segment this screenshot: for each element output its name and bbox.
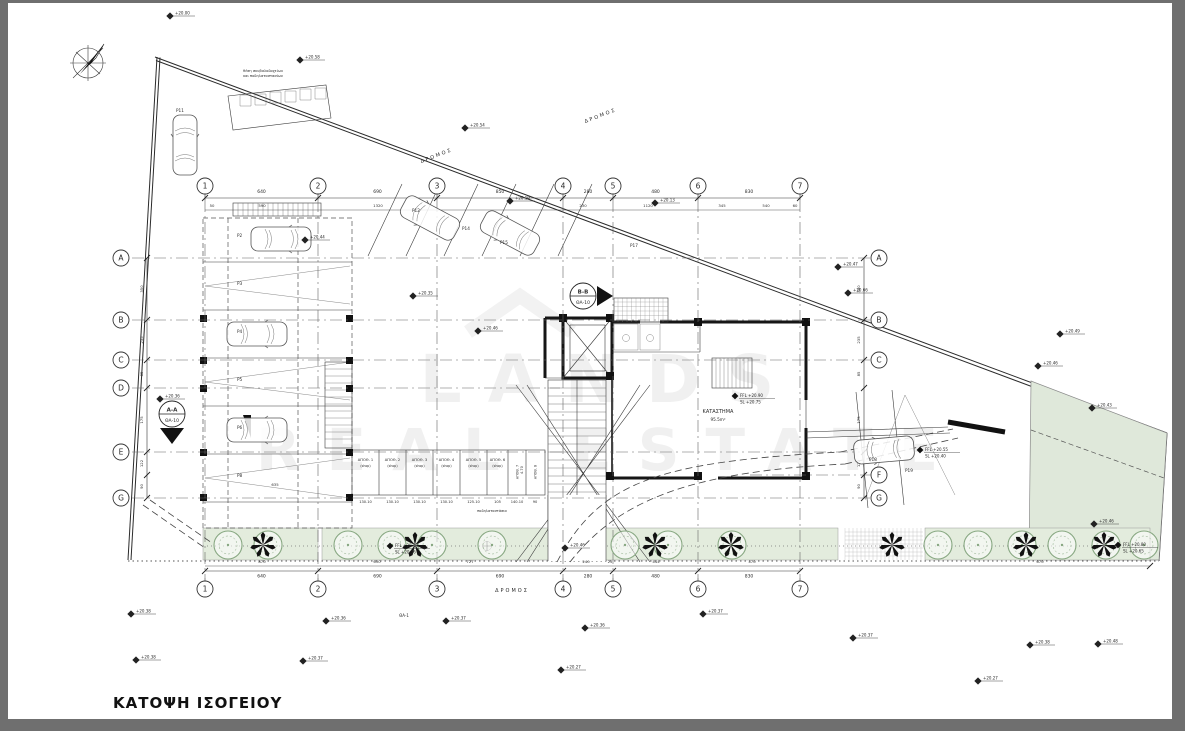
tree-icon (478, 531, 506, 559)
spot-level-value: +20.49 (1065, 329, 1080, 334)
parking-stall-label: P18 (869, 457, 877, 462)
dim-label: 850 (496, 189, 505, 195)
note-label: 4.70 (520, 466, 524, 474)
grid-bubble-label: G (118, 494, 124, 503)
parking-stall-label: P4 (237, 329, 243, 334)
dim-label: 25 (608, 559, 613, 564)
tree-icon (924, 531, 952, 559)
grid-bubble-label: E (119, 448, 124, 457)
parking-stall-label: P2 (237, 233, 243, 238)
section-sheet: ΘΑ-10 (576, 300, 590, 306)
dim-label: 1320 (373, 203, 383, 208)
storage-cell-dim: 125.10 (467, 500, 480, 504)
storage-cell-dim: 90 (533, 500, 538, 504)
dim-label: 540 (762, 203, 770, 208)
dim-label: 1120 (643, 203, 653, 208)
tree-icon (964, 531, 992, 559)
section-sheet: ΘΑ-10 (165, 418, 179, 424)
dim-label: 280 (584, 574, 593, 580)
storage-cell-label: ΑΠΟΘ. 1 (358, 458, 373, 462)
dim-label: 90 (139, 484, 144, 489)
spot-level-value: +20.46 (1043, 361, 1058, 366)
drawing-viewer: LANDS REAL ESTATE (0, 0, 1185, 731)
dim-label: 85 (856, 371, 861, 376)
grid-bubble-label: 5 (611, 182, 616, 191)
dim-label: 50 (210, 203, 215, 208)
sl-value: SL +20.40 (925, 454, 946, 459)
grid-bubble-label: 1 (203, 182, 208, 191)
dim-label: 690 (373, 574, 382, 580)
dim-label: 470 (748, 559, 756, 564)
grid-bubble-label: 4 (561, 585, 566, 594)
dim-label: 240 (582, 559, 590, 564)
grid-bubble-label: 7 (798, 585, 803, 594)
car-icon (227, 416, 287, 444)
parking-stall-label: P15 (500, 240, 508, 245)
ffl-value: FFL +20.48 (395, 543, 418, 548)
parking-stall-label: P19 (905, 468, 913, 473)
dim-label: 830 (745, 189, 754, 195)
spot-level-value: +20.47 (843, 262, 858, 267)
spot-level-value: +20.38 (141, 655, 156, 660)
storage-cell-sublabel: (shop) (360, 464, 370, 468)
floor-plan-svg: LANDS REAL ESTATE (0, 0, 1185, 731)
spot-level-value: +20.58 (305, 55, 320, 60)
sl-value: SL +20.75 (740, 400, 761, 405)
storage-cell-dim: 130.10 (440, 500, 453, 504)
spot-level-value: +20.37 (308, 656, 323, 661)
ffl-value: FFL +20.55 (925, 447, 948, 452)
tree-icon (334, 531, 362, 559)
grid-bubble-label: G (876, 494, 882, 503)
storage-cell-dim: 130.10 (386, 500, 399, 504)
dim-label: 60 (793, 203, 798, 208)
storage-cell-dim: 130.10 (413, 500, 426, 504)
spot-level-value: +20.13 (660, 198, 675, 203)
spot-level-value: +20.27 (983, 676, 998, 681)
dim-label: 230 (579, 203, 587, 208)
sl-value: SL +20.65 (1123, 549, 1144, 554)
dim-label: 640 (257, 189, 266, 195)
dim-label: 350 (139, 285, 144, 293)
tree-icon (611, 531, 639, 559)
spot-level-value: +20.35 (418, 291, 433, 296)
storage-cell-sublabel: (shop) (492, 464, 502, 468)
note-label: 635 (271, 482, 279, 487)
spot-level-value: +20.38 (136, 609, 151, 614)
spot-level-value: +20.37 (708, 609, 723, 614)
dim-label: 830 (745, 574, 754, 580)
grid-bubble-label: B (876, 316, 881, 325)
dim-label: 280 (584, 189, 593, 195)
parking-stall-label: P6 (237, 425, 243, 430)
grid-bubble-label: 1 (203, 585, 208, 594)
dim-label: 85 (139, 371, 144, 376)
parking-stall-label: P5 (237, 377, 243, 382)
spot-level-value: +20.36 (331, 616, 346, 621)
grid-bubble-label: C (118, 356, 123, 365)
grid-bubble-label: 2 (316, 182, 321, 191)
storage-cell-label: ΑΠΟΘ. 3 (412, 458, 427, 462)
spot-level-value: +20.46 (570, 543, 585, 548)
spot-level-value: +20.27 (566, 665, 581, 670)
car-icon (251, 225, 311, 253)
grid-bubble-label: D (118, 384, 124, 393)
section-name: B-B (578, 290, 589, 296)
parking-stall-label: P14 (462, 226, 470, 231)
dim-label: 444 (652, 559, 660, 564)
spot-level-value: +20.37 (451, 616, 466, 621)
spot-level-value: +20.46 (1099, 519, 1114, 524)
storage-cell-label: ΑΠΟΘ. 4 (439, 458, 455, 462)
grid-bubble-label: 3 (435, 585, 440, 594)
spot-level-value: +20.37 (858, 633, 873, 638)
dim-label: 345 (718, 203, 726, 208)
storage-cell-sublabel: (shop) (468, 464, 478, 468)
storage-cell-label: ΑΠΟΘ. 6 (490, 458, 506, 462)
storage-cell-label: ΑΠΟΘ. 7 (516, 465, 520, 479)
storage-cell-dim: 140.10 (511, 500, 524, 504)
note-label: ΘΑ-1 (399, 613, 409, 618)
dim-label: 690 (496, 574, 505, 580)
spot-level-value: +20.43 (1097, 403, 1112, 408)
dim-label: 690 (373, 189, 382, 195)
dim-label: 175 (856, 416, 861, 424)
storage-cell-label: ΑΠΟΘ. 8 (534, 465, 538, 479)
dim-label: 630 (373, 559, 381, 564)
spot-level-value: +20.36 (165, 394, 180, 399)
storage-cell-label: ΑΠΟΘ. 2 (385, 458, 400, 462)
dim-label: 670 (1036, 559, 1044, 564)
spot-level-value: +20.36 (590, 623, 605, 628)
grid-bubble-label: 7 (798, 182, 803, 191)
shop-area-label: 95.5m² (710, 417, 725, 422)
dim-label: 122 (139, 459, 144, 467)
grid-bubble-label: 6 (696, 182, 701, 191)
grid-bubble-label: 4 (561, 182, 566, 191)
storage-cell-sublabel: (shop) (441, 464, 451, 468)
grid-bubble-label: A (876, 254, 882, 263)
dim-label: 175 (139, 416, 144, 424)
parking-stall-label: P17 (630, 243, 638, 248)
dim-label: 235 (856, 336, 861, 344)
ffl-value: FFL +20.80 (1123, 542, 1146, 547)
dim-label: 480 (651, 189, 660, 195)
dim-label: 480 (651, 574, 660, 580)
dim-label: 590 (258, 203, 266, 208)
grid-bubble-label: F (877, 471, 881, 480)
drawing-title: ΚΑΤΟΨΗ ΙΣΟΓΕΙΟΥ (113, 694, 282, 712)
dim-label: 870 (258, 559, 266, 564)
dim-label: 90 (856, 484, 861, 489)
grid-bubble-label: C (876, 356, 881, 365)
spot-level-value: +20.38 (1035, 640, 1050, 645)
parking-stall-label: P3 (237, 281, 243, 286)
storage-cell-dim: 130.10 (359, 500, 372, 504)
grid-bubble-label: 2 (316, 585, 321, 594)
spot-level-value: +20.48 (1103, 639, 1118, 644)
spot-level-value: +20.66 (853, 288, 868, 293)
spot-level-value: +20.19 (515, 196, 530, 201)
car-icon (227, 320, 287, 348)
parking-stall-label: P8 (237, 473, 243, 478)
grid-bubble-label: 5 (611, 585, 616, 594)
tree-icon (1048, 531, 1076, 559)
note-label: και ποδηλατοστασίων (243, 74, 283, 78)
storage-cell-sublabel: (shop) (414, 464, 424, 468)
note-label: θέση σκυβαλοδοχείων (243, 69, 283, 73)
spot-level-value: +20.00 (175, 11, 190, 16)
parking-stall-label: P11 (176, 108, 184, 113)
parking-stall-label: P12 (412, 208, 420, 213)
shop-name-label: ΚΑΤΑΣΤΗΜΑ (703, 409, 734, 415)
road-label: ΔΡΟΜΟΣ (495, 588, 529, 594)
note-label: ποδηλατοστάσια (477, 509, 507, 513)
spot-level-value: +20.54 (470, 123, 485, 128)
spot-level-value: +20.46 (483, 326, 498, 331)
storage-cell-label: ΑΠΟΘ. 5 (466, 458, 481, 462)
grid-bubble-label: 6 (696, 585, 701, 594)
grid-bubble-label: B (118, 316, 123, 325)
storage-cell-sublabel: (shop) (387, 464, 397, 468)
dim-label: 235 (139, 336, 144, 344)
spot-level-value: +20.44 (310, 235, 325, 240)
ffl-value: FFL +20.90 (740, 393, 763, 398)
grid-bubble-label: 3 (435, 182, 440, 191)
grid-bubble-label: A (118, 254, 124, 263)
storage-cell-dim: 105 (494, 500, 501, 504)
section-name: A-A (167, 408, 179, 414)
dim-label: 727 (466, 559, 474, 564)
sl-value: SL +20.36 (395, 550, 416, 555)
car-icon (171, 115, 199, 175)
tree-icon (214, 531, 242, 559)
dim-label: 640 (257, 574, 266, 580)
